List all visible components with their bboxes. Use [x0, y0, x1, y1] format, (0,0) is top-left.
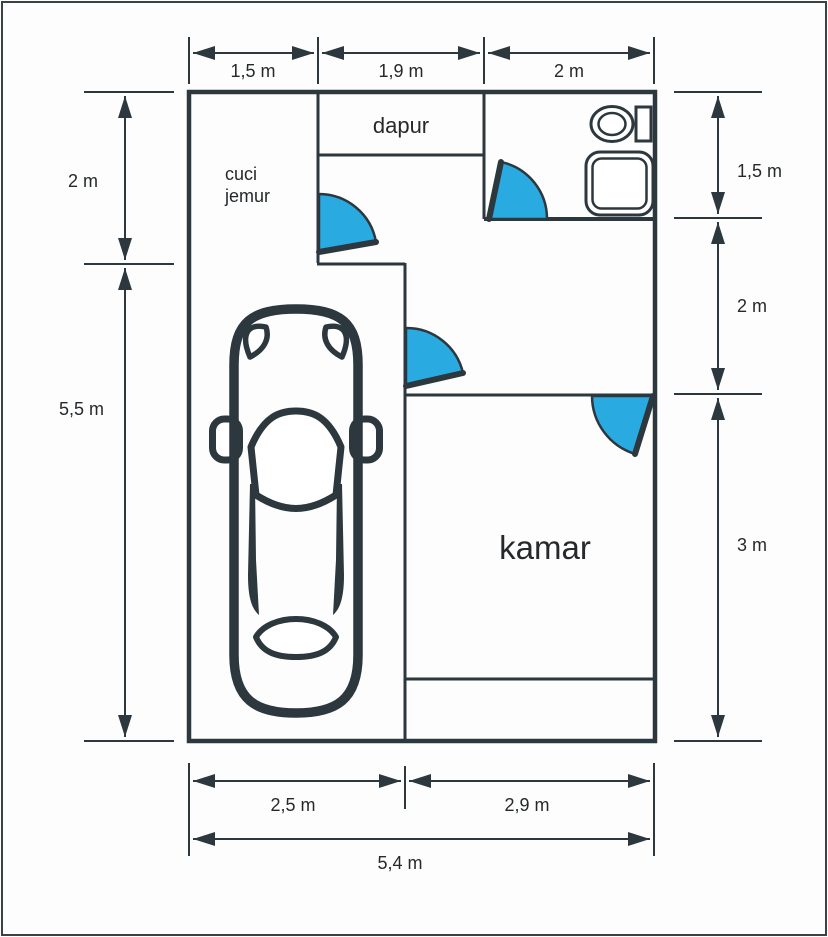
- dim-label: 1,5 m: [230, 61, 275, 81]
- dim-label: 5,4 m: [377, 853, 422, 873]
- dim-label: 3 m: [737, 535, 767, 555]
- room-label-cuci-jemur-line2: jemur: [224, 186, 270, 206]
- room-label-kamar: kamar: [499, 529, 591, 566]
- floor-plan-page: 1,5 m 1,9 m 2 m 2 m 5,5 m 1,5 m 2 m 3 m …: [0, 0, 828, 937]
- dim-label: 2,5 m: [270, 795, 315, 815]
- sink-icon: [586, 152, 653, 215]
- car-icon: [213, 309, 380, 713]
- room-label-cuci-jemur-line1: cuci: [225, 164, 257, 184]
- dim-label: 1,9 m: [378, 61, 423, 81]
- door-swing-icon: [489, 162, 547, 219]
- dimension-bottom: 2,5 m 2,9 m 5,4 m: [189, 763, 654, 873]
- toilet-icon: [591, 107, 651, 142]
- dim-label: 5,5 m: [59, 399, 104, 419]
- dim-label: 2,9 m: [504, 795, 549, 815]
- dimension-right: 1,5 m 2 m 3 m: [674, 92, 782, 741]
- dimension-left: 2 m 5,5 m: [59, 92, 174, 741]
- room-label-dapur: dapur: [373, 113, 429, 138]
- door-swing-icon: [592, 396, 653, 454]
- door-swing-icon: [319, 194, 376, 252]
- dim-label: 1,5 m: [737, 161, 782, 181]
- dim-label: 2 m: [737, 296, 767, 316]
- dimension-top: 1,5 m 1,9 m 2 m: [189, 37, 654, 84]
- dim-label: 2 m: [68, 171, 98, 191]
- door-swing-icon: [406, 328, 463, 386]
- dim-label: 2 m: [554, 61, 584, 81]
- floor-plan-svg: 1,5 m 1,9 m 2 m 2 m 5,5 m 1,5 m 2 m 3 m …: [0, 0, 828, 937]
